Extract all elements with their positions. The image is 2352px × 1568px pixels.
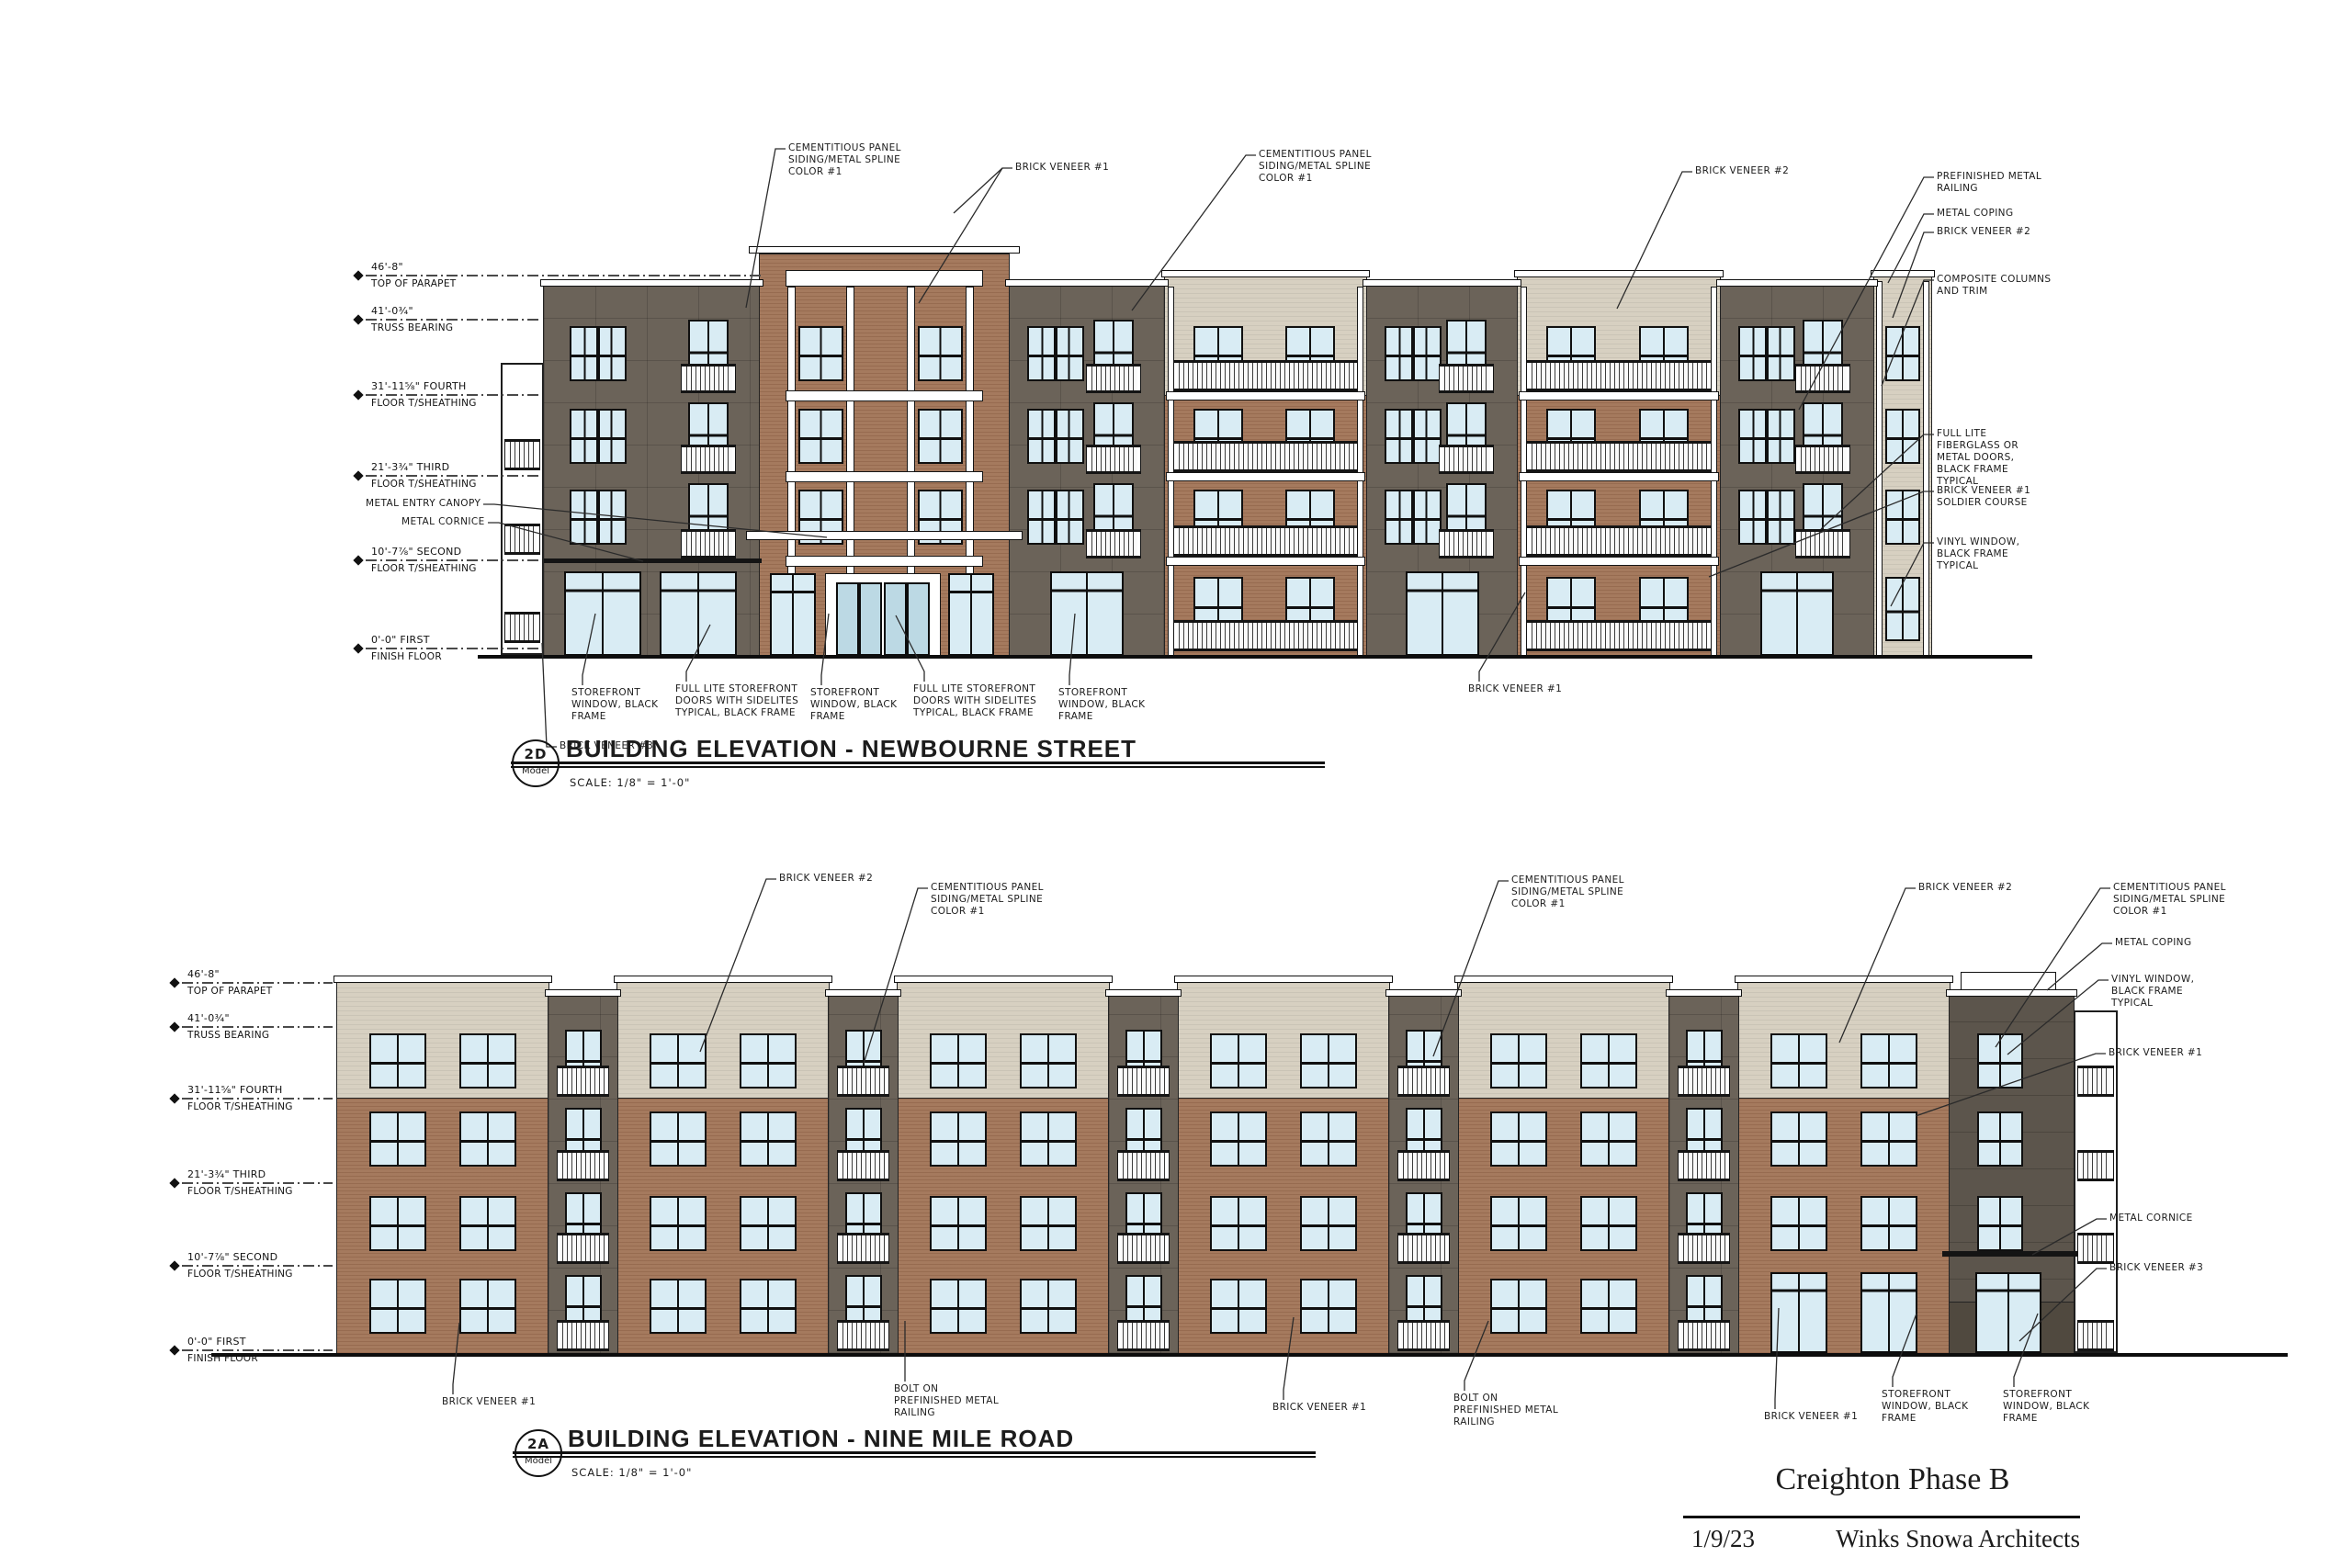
callout-label: BOLT ON PREFINISHED METAL RAILING — [1453, 1393, 1558, 1428]
roof-structure — [1961, 972, 2056, 990]
level-value: 21'-3¾" THIRD — [371, 462, 449, 473]
storefront-window — [1770, 1272, 1827, 1353]
balcony-railing — [1117, 1066, 1170, 1097]
callout-label: STOREFRONT WINDOW, BLACK FRAME — [2003, 1389, 2089, 1425]
balcony-railing — [1397, 1150, 1450, 1181]
window — [369, 1111, 426, 1167]
window — [1977, 1033, 2023, 1089]
callout-label: BRICK VENEER #2 — [779, 873, 873, 885]
level-marker-diamond — [353, 314, 363, 324]
level-line — [366, 394, 542, 396]
level-value: 31'-11⅝" FOURTH — [187, 1085, 283, 1096]
callout-label: BRICK VENEER #2 — [1918, 882, 2012, 894]
callout-label: BRICK VENEER #3 — [560, 740, 653, 752]
elevation-scale: SCALE: 1/8" = 1'-0" — [571, 1466, 692, 1479]
window — [1977, 1196, 2023, 1251]
level-label: FINISH FLOOR — [371, 651, 442, 662]
level-label: TOP OF PARAPET — [371, 278, 456, 289]
balcony-railing — [1678, 1320, 1730, 1351]
parapet-coping — [614, 976, 832, 983]
level-value: 31'-11⅝" FOURTH — [371, 381, 467, 392]
level-marker-diamond — [353, 470, 363, 480]
balcony-railing — [837, 1233, 889, 1264]
storefront-window — [564, 571, 641, 656]
trim-band — [1519, 557, 1719, 566]
callout-label: VINYL WINDOW, BLACK FRAME TYPICAL — [2111, 974, 2194, 1010]
level-line — [182, 1349, 333, 1351]
callout-label: BRICK VENEER #1 — [1272, 1402, 1366, 1414]
window — [918, 326, 963, 381]
callout-label: BRICK VENEER #1 — [442, 1396, 536, 1408]
storefront-window — [1050, 571, 1124, 656]
window-pair — [1027, 490, 1084, 545]
level-marker-diamond — [353, 270, 363, 280]
corner-balcony-wing — [2074, 1010, 2118, 1353]
window-pair — [1027, 409, 1084, 464]
window — [459, 1279, 516, 1334]
balcony-railing — [1173, 360, 1358, 391]
window — [1490, 1279, 1547, 1334]
level-line — [366, 475, 542, 477]
level-value: 21'-3¾" THIRD — [187, 1169, 266, 1180]
parapet-coping — [1666, 989, 1742, 997]
balcony-railing — [1173, 620, 1358, 651]
callout-label: BRICK VENEER #1 — [1468, 683, 1562, 695]
window — [740, 1033, 797, 1089]
callout-label: PREFINISHED METAL RAILING — [1937, 171, 2041, 195]
callout-label: BOLT ON PREFINISHED METAL RAILING — [894, 1383, 999, 1419]
balcony-railing — [1086, 364, 1141, 393]
balcony-railing — [1526, 525, 1712, 557]
trim-band — [1519, 391, 1719, 400]
balcony-railing — [1526, 620, 1712, 651]
balcony-railing — [837, 1066, 889, 1097]
trim-band — [1876, 281, 1883, 657]
level-label: TRUSS BEARING — [187, 1030, 269, 1041]
level-label: FLOOR T/SHEATHING — [187, 1269, 293, 1280]
level-label: TOP OF PARAPET — [187, 986, 272, 997]
window-pair — [570, 326, 627, 381]
level-marker-diamond — [353, 389, 363, 400]
callout-label: BRICK VENEER #1 — [1764, 1411, 1858, 1423]
callout-label: CEMENTITIOUS PANEL SIDING/METAL SPLINE C… — [1259, 149, 1372, 185]
parapet-coping — [1735, 976, 1953, 983]
storefront-window — [948, 573, 994, 656]
callout-label: METAL CORNICE — [401, 516, 485, 528]
trim-band — [786, 556, 983, 567]
level-marker-diamond — [353, 643, 363, 653]
balcony-railing — [557, 1150, 609, 1181]
window-pair — [1738, 326, 1795, 381]
window — [1977, 1111, 2023, 1167]
balcony-railing — [504, 612, 540, 643]
level-line — [182, 1026, 333, 1028]
title-block-rule — [1683, 1516, 2080, 1518]
balcony-railing — [2077, 1233, 2114, 1264]
window — [650, 1196, 707, 1251]
balcony-railing — [1086, 529, 1141, 558]
callout-label: BRICK VENEER #2 — [1695, 165, 1789, 177]
window-pair — [1385, 409, 1442, 464]
level-value: 10'-7⅞" SECOND — [371, 547, 461, 558]
storefront-window — [1406, 571, 1479, 656]
trim-band — [1923, 281, 1929, 657]
leader-line — [2047, 943, 2112, 990]
window — [1300, 1111, 1357, 1167]
level-value: 46'-8" — [187, 969, 220, 980]
level-label: FLOOR T/SHEATHING — [371, 479, 477, 490]
window — [459, 1033, 516, 1089]
callout-label: CEMENTITIOUS PANEL SIDING/METAL SPLINE C… — [788, 142, 901, 178]
trim-band — [1166, 557, 1365, 566]
entry-door — [836, 582, 882, 656]
window — [1210, 1111, 1267, 1167]
window — [1770, 1196, 1827, 1251]
level-label: TRUSS BEARING — [371, 322, 453, 333]
title-underline-2 — [511, 766, 1325, 768]
balcony-railing — [1117, 1320, 1170, 1351]
window — [650, 1279, 707, 1334]
entry-door — [884, 582, 930, 656]
balcony-railing — [681, 529, 736, 558]
level-line — [366, 319, 542, 321]
window — [918, 409, 963, 464]
balcony-railing — [1086, 445, 1141, 474]
level-value: 41'-0¾" — [371, 306, 413, 317]
window-pair — [1738, 490, 1795, 545]
parapet-coping — [1946, 989, 2077, 997]
balcony-railing — [1795, 445, 1850, 474]
window — [1580, 1111, 1637, 1167]
parapet-coping — [334, 976, 552, 983]
level-label: FLOOR T/SHEATHING — [187, 1186, 293, 1197]
callout-label: BRICK VENEER #2 — [1937, 226, 2030, 238]
level-line — [366, 559, 542, 561]
window — [740, 1196, 797, 1251]
callout-label: FULL LITE FIBERGLASS OR METAL DOORS, BLA… — [1937, 428, 2018, 488]
window — [930, 1033, 987, 1089]
window — [1020, 1033, 1077, 1089]
parapet-coping — [1454, 976, 1673, 983]
parapet-coping — [1363, 279, 1521, 287]
window — [459, 1111, 516, 1167]
window — [1580, 1279, 1637, 1334]
parapet-coping — [749, 246, 1020, 254]
parapet-coping — [825, 989, 901, 997]
level-label: FINISH FLOOR — [187, 1353, 258, 1364]
level-label: FLOOR T/SHEATHING — [371, 563, 477, 574]
window — [369, 1033, 426, 1089]
level-marker-diamond — [169, 1178, 179, 1188]
balcony-railing — [1397, 1320, 1450, 1351]
level-value: 41'-0¾" — [187, 1013, 230, 1024]
level-value: 10'-7⅞" SECOND — [187, 1252, 277, 1263]
window — [1580, 1196, 1637, 1251]
window — [1020, 1196, 1077, 1251]
window — [1020, 1279, 1077, 1334]
callout-label: BRICK VENEER #1 SOLDIER COURSE — [1937, 485, 2030, 509]
storefront-window — [660, 571, 737, 656]
level-value: 0'-0" FIRST — [187, 1337, 246, 1348]
parapet-coping — [1385, 989, 1462, 997]
balcony-railing — [1678, 1066, 1730, 1097]
level-label: FLOOR T/SHEATHING — [371, 398, 477, 409]
ground-line — [478, 655, 2032, 659]
balcony-railing — [681, 445, 736, 474]
callout-label: STOREFRONT WINDOW, BLACK FRAME — [1882, 1389, 1968, 1425]
level-line — [182, 1098, 333, 1100]
window-pair — [1385, 490, 1442, 545]
callout-label: METAL COPING — [1937, 208, 2013, 220]
window — [1860, 1196, 1917, 1251]
window — [459, 1196, 516, 1251]
balcony-railing — [2077, 1150, 2114, 1181]
window — [1770, 1111, 1827, 1167]
window — [1490, 1196, 1547, 1251]
trim-band — [1166, 472, 1365, 481]
storefront-window — [1975, 1272, 2041, 1353]
level-line — [182, 1265, 333, 1267]
level-marker-diamond — [169, 1345, 179, 1355]
callout-label: METAL CORNICE — [2109, 1213, 2193, 1224]
trim-band — [1166, 391, 1365, 400]
window — [930, 1196, 987, 1251]
window — [1490, 1111, 1547, 1167]
project-title: Creighton Phase B — [1681, 1462, 2104, 1497]
window — [740, 1279, 797, 1334]
callout-label: BRICK VENEER #1 — [1015, 162, 1109, 174]
window — [1210, 1279, 1267, 1334]
window — [650, 1033, 707, 1089]
parapet-coping — [545, 989, 621, 997]
parapet-coping — [1174, 976, 1393, 983]
drawing-sheet: 2D Model BUILDING ELEVATION - NEWBOURNE … — [0, 0, 2352, 1568]
window-pair — [570, 490, 627, 545]
balcony-railing — [1526, 441, 1712, 472]
window-pair — [1738, 409, 1795, 464]
elevation-title-nine-mile: BUILDING ELEVATION - NINE MILE ROAD — [568, 1425, 1074, 1453]
callout-label: FULL LITE STOREFRONT DOORS WITH SIDELITE… — [913, 683, 1036, 719]
trim-band — [786, 390, 983, 401]
balcony-railing — [1397, 1066, 1450, 1097]
balcony-railing — [837, 1150, 889, 1181]
level-line — [366, 275, 763, 276]
drawing-model-label: Model — [516, 1456, 560, 1466]
balcony-railing — [2077, 1066, 2114, 1097]
window — [1020, 1111, 1077, 1167]
callout-label: STOREFRONT WINDOW, BLACK FRAME — [1058, 687, 1145, 723]
balcony-railing — [837, 1320, 889, 1351]
leader-line — [954, 168, 1002, 213]
window — [798, 326, 843, 381]
window — [1885, 577, 1920, 641]
level-value: 0'-0" FIRST — [371, 635, 430, 646]
window — [1580, 1033, 1637, 1089]
window — [369, 1196, 426, 1251]
balcony-railing — [1117, 1233, 1170, 1264]
balcony-railing — [504, 439, 540, 470]
trim-band — [1519, 472, 1719, 481]
balcony-railing — [1173, 525, 1358, 557]
level-marker-diamond — [169, 977, 179, 987]
drawing-number: 2D — [514, 746, 558, 762]
callout-label: METAL ENTRY CANOPY — [366, 498, 481, 510]
parapet-coping — [1161, 270, 1370, 277]
balcony-railing — [681, 364, 736, 393]
level-line — [182, 982, 333, 984]
callout-label: COMPOSITE COLUMNS AND TRIM — [1937, 274, 2051, 298]
balcony-railing — [1117, 1150, 1170, 1181]
window-pair — [570, 409, 627, 464]
window — [1860, 1033, 1917, 1089]
window — [1300, 1033, 1357, 1089]
window — [930, 1111, 987, 1167]
parapet-coping — [1871, 270, 1935, 277]
window — [1885, 409, 1920, 464]
metal-entry-canopy — [746, 531, 1023, 540]
balcony-railing — [557, 1066, 609, 1097]
window — [798, 409, 843, 464]
window — [930, 1279, 987, 1334]
parapet-coping — [540, 279, 763, 287]
storefront-window — [770, 573, 816, 656]
balcony-railing — [1678, 1150, 1730, 1181]
window — [1885, 326, 1920, 381]
level-marker-diamond — [169, 1093, 179, 1103]
level-label: FLOOR T/SHEATHING — [187, 1101, 293, 1112]
level-line — [182, 1182, 333, 1184]
window — [1770, 1033, 1827, 1089]
drawing-tag-circle: 2D Model — [512, 739, 560, 787]
drawing-model-label: Model — [514, 766, 558, 776]
drawing-tag-circle: 2A Model — [514, 1429, 562, 1477]
trim-band — [786, 270, 983, 287]
window — [740, 1111, 797, 1167]
balcony-railing — [1397, 1233, 1450, 1264]
balcony-railing — [504, 524, 540, 555]
balcony-railing — [557, 1233, 609, 1264]
balcony-railing — [1439, 529, 1494, 558]
trim-band — [786, 471, 983, 482]
window — [369, 1279, 426, 1334]
metal-cornice — [544, 558, 762, 563]
parapet-coping — [1514, 270, 1724, 277]
window — [1300, 1196, 1357, 1251]
balcony-railing — [1795, 529, 1850, 558]
balcony-railing — [1678, 1233, 1730, 1264]
callout-label: STOREFRONT WINDOW, BLACK FRAME — [810, 687, 897, 723]
window — [1885, 490, 1920, 545]
level-value: 46'-8" — [371, 262, 403, 273]
balcony-railing — [1173, 441, 1358, 472]
elevation-scale: SCALE: 1/8" = 1'-0" — [570, 776, 690, 789]
window — [1490, 1033, 1547, 1089]
parapet-coping — [1005, 279, 1169, 287]
callout-label: FULL LITE STOREFRONT DOORS WITH SIDELITE… — [675, 683, 798, 719]
level-marker-diamond — [169, 1021, 179, 1032]
window — [1300, 1279, 1357, 1334]
callout-label: CEMENTITIOUS PANEL SIDING/METAL SPLINE C… — [2113, 882, 2226, 918]
balcony-railing — [1439, 445, 1494, 474]
callout-label: CEMENTITIOUS PANEL SIDING/METAL SPLINE C… — [931, 882, 1044, 918]
drawing-number: 2A — [516, 1436, 560, 1452]
window — [1860, 1111, 1917, 1167]
parapet-coping — [894, 976, 1113, 983]
architect-name: Winks Snowa Architects — [1786, 1525, 2080, 1553]
title-underline-2 — [513, 1456, 1316, 1458]
level-marker-diamond — [169, 1260, 179, 1270]
callout-label: METAL COPING — [2115, 937, 2191, 949]
parapet-coping — [1105, 989, 1182, 997]
parapet-coping — [1716, 279, 1878, 287]
window — [1210, 1196, 1267, 1251]
callout-label: BRICK VENEER #3 — [2109, 1262, 2203, 1274]
balcony-railing — [1526, 360, 1712, 391]
level-marker-diamond — [353, 555, 363, 565]
callout-label: BRICK VENEER #1 — [2109, 1047, 2202, 1059]
window-pair — [1385, 326, 1442, 381]
storefront-window — [1860, 1272, 1917, 1353]
balcony-railing — [1439, 364, 1494, 393]
window-pair — [1027, 326, 1084, 381]
window — [1210, 1033, 1267, 1089]
ground-line — [211, 1353, 2288, 1357]
balcony-railing — [557, 1320, 609, 1351]
storefront-window — [1760, 571, 1834, 656]
callout-label: CEMENTITIOUS PANEL SIDING/METAL SPLINE C… — [1511, 874, 1624, 910]
window — [650, 1111, 707, 1167]
level-line — [366, 648, 542, 649]
sheet-date: 1/9/23 — [1691, 1525, 1755, 1553]
metal-cornice — [1942, 1251, 2081, 1257]
balcony-railing — [1795, 364, 1850, 393]
balcony-railing — [2077, 1320, 2114, 1351]
callout-label: VINYL WINDOW, BLACK FRAME TYPICAL — [1937, 536, 2019, 572]
callout-label: STOREFRONT WINDOW, BLACK FRAME — [571, 687, 658, 723]
